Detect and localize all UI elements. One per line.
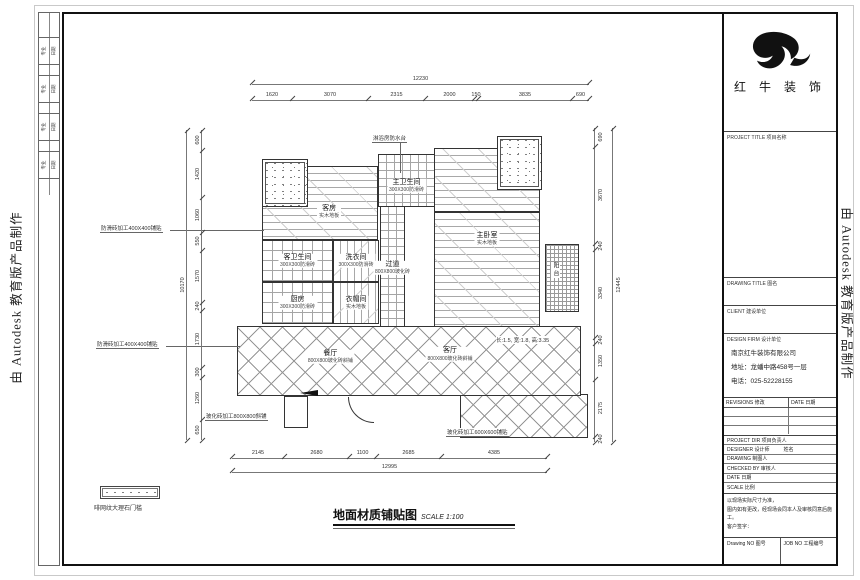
autodesk-watermark-left: 由 Autodesk 教育版产品制作: [6, 203, 25, 393]
room-label-master-bath: 主卫生间 300X300防滑砖: [387, 178, 426, 192]
designer-name: 姓名: [784, 446, 794, 453]
brand-name: 红 牛 装 饰: [724, 78, 836, 95]
room-label-kitchen: 厨房 300X300防滑砖: [278, 296, 317, 310]
planter-top-right: [497, 136, 542, 190]
dim-value: 2145: [252, 450, 264, 456]
entry-porch: [284, 396, 308, 428]
legend-label: 啡网纹大理石门槛: [94, 503, 142, 512]
checked-by-row: CHECKED BY 审核人: [724, 464, 836, 473]
dim-top-segments: 16203070231520001503835690: [252, 100, 589, 101]
signature-cell: 专业 日期: [39, 75, 59, 103]
dim-value: 1060: [195, 208, 201, 220]
sheet-title-text: 地面材质铺贴图: [333, 508, 417, 522]
drawing-by-row: DRAWING 制图人: [724, 455, 836, 464]
dim-value: 1100: [357, 450, 369, 456]
room-master-bed: 主卧室 实木地板: [434, 212, 540, 330]
dim-bottom-total: 12995: [232, 472, 547, 473]
dim-value: 2680: [310, 450, 322, 456]
title-block-revisions-section: REVISIONS 修改 DATE 日期: [724, 398, 836, 436]
sheet-title-underline: [333, 524, 515, 526]
dim-value: 550: [195, 236, 201, 245]
dim-value: 1620: [266, 92, 278, 98]
room-label-living: 客厅 800X800玻化砖斜铺: [426, 347, 475, 361]
room-kitchen: 厨房 300X300防滑砖: [262, 282, 333, 324]
dim-value: 2315: [390, 92, 402, 98]
note-left2-leader: [166, 346, 240, 347]
project-title-label: PROJECT TITLE 项目名称: [724, 132, 836, 141]
signature-cell-text: 日期: [41, 46, 67, 56]
project-dir-row: PROJECT DIR 项目负责人: [724, 436, 836, 445]
frame-left-line: [62, 12, 64, 566]
dim-value: 1570: [195, 270, 201, 282]
date-row: DATE 日期: [724, 474, 836, 483]
client-signature-label: 客户签字：: [727, 523, 833, 532]
project-dir-label: PROJECT DIR 项目负责人: [727, 437, 787, 444]
signature-cell: 专业 日期: [39, 151, 59, 179]
note-tile-600: 玻化砖加工600X600铺贴: [446, 428, 509, 437]
sheet-scale-text: SCALE 1:100: [421, 514, 463, 521]
dim-value: 1260: [195, 392, 201, 404]
note-shower-curb-leader: [400, 143, 401, 173]
planter-top-left: [262, 159, 308, 207]
client-label: CLIENT 建设单位: [724, 306, 836, 315]
title-block-drawing-title-section: DRAWING TITLE 图名: [724, 278, 836, 306]
revisions-header: REVISIONS 修改 DATE 日期: [724, 398, 836, 408]
room-label-guest-bath: 客卫生间 300X300防滑砖: [278, 254, 317, 268]
room-material: 实木地板: [477, 240, 498, 246]
note-tile-400-left2: 防滑砖加工400X400铺贴: [96, 340, 159, 349]
title-block-notes-section: 以现场实际尺寸为准， 图内如有更改，经现场会同本人及审核同意后施工。 客户签字：: [724, 494, 836, 538]
dim-left-segments: 60014201060550157024017303001260650: [201, 130, 202, 440]
revisions-label: REVISIONS 修改: [724, 398, 788, 407]
dim-value: 4385: [488, 450, 500, 456]
revision-row: [724, 426, 836, 434]
room-material: 实木地板: [319, 213, 339, 219]
room-guest-bath: 客卫生间 300X300防滑砖: [262, 240, 333, 282]
drawing-no-label: Drawing NO 图号: [724, 538, 780, 564]
room-material: 300X300防滑砖: [389, 187, 424, 193]
room-label-laundry: 洗衣间 300X300防滑砖: [336, 254, 375, 268]
dim-value: 12995: [382, 464, 397, 470]
scale-row: SCALE 比例: [724, 483, 836, 492]
company-phone: 电话：025-52228155: [724, 375, 836, 385]
signature-cell: 专业 日期: [39, 37, 59, 65]
room-material: 800X800玻化砖斜铺: [428, 355, 473, 361]
room-label-guest-room: 客房 实木地板: [317, 204, 341, 218]
dim-value: 300: [195, 367, 201, 376]
title-block-project-section: PROJECT TITLE 项目名称: [724, 132, 836, 278]
room-corridor: 过道 800X800玻化砖: [380, 206, 405, 330]
signature-strip: 专业 日期 专业 日期 专业 日期 专业 日期: [38, 12, 60, 566]
dim-value: 1730: [195, 332, 201, 344]
sheet-title-underline-thin: [333, 528, 515, 529]
entry-arrow-icon: [300, 390, 318, 396]
dim-value: 2000: [443, 92, 455, 98]
signature-cell-text: 日期: [41, 160, 67, 170]
dim-value: 240: [598, 335, 604, 344]
title-block-people-section: PROJECT DIR 项目负责人 DESIGNER 设计师 姓名 DRAWIN…: [724, 436, 836, 494]
room-material: 800X800玻化砖: [375, 269, 410, 275]
title-block-numbers-section: Drawing NO 图号 JOB NO 工程编号: [724, 538, 836, 564]
dim-value: 3070: [324, 92, 336, 98]
signature-cell-text: 日期: [41, 122, 67, 132]
note-tile-400-left1: 防滑砖加工400X400铺贴: [100, 224, 163, 233]
dim-value: 10170: [180, 277, 186, 292]
dim-value: 240: [598, 434, 604, 443]
room-material: 300X300防滑砖: [280, 304, 315, 310]
dim-value: 600: [195, 135, 201, 144]
dim-value: 240: [195, 301, 201, 310]
revisions-date-label: DATE 日期: [788, 398, 836, 407]
note-bay-window-size: 长:1.5, 宽:1.8, 高:3.35: [496, 336, 549, 344]
revision-row: [724, 417, 836, 426]
title-block-client-section: CLIENT 建设单位: [724, 306, 836, 334]
job-no-label: JOB NO 工程编号: [780, 538, 837, 564]
date-label: DATE 日期: [727, 474, 751, 481]
dim-value: 2685: [402, 450, 414, 456]
designer-label: DESIGNER 设计师: [727, 446, 770, 453]
dim-bottom-segments: 21452680110026854385: [232, 458, 547, 459]
room-material: 300X300防滑砖: [338, 262, 373, 268]
legend-swatch-pattern: [102, 488, 158, 497]
dim-value: 1420: [195, 167, 201, 179]
company-name: 南京红牛装饰有限公司: [724, 347, 836, 357]
room-label-master-bed: 主卧室 实木地板: [475, 231, 500, 245]
room-material: 300X300防滑砖: [280, 262, 315, 268]
note-line: 图内如有更改，经现场会同本人及审核同意后施工。: [727, 506, 833, 523]
note-line: 以现场实际尺寸为准，: [727, 497, 833, 506]
checked-by-label: CHECKED BY 审核人: [727, 465, 776, 472]
signature-cell: 专业 日期: [39, 113, 59, 141]
room-material: 800X800玻化砖斜铺: [308, 358, 353, 364]
room-cloak: 衣帽间 实木地板: [333, 282, 379, 324]
room-material: 实木地板: [346, 304, 367, 310]
dim-value: 1350: [598, 355, 604, 367]
redbull-logo-icon: [744, 28, 816, 76]
room-label-corridor: 过道 800X800玻化砖: [373, 261, 412, 275]
dim-value: 12230: [413, 76, 428, 82]
note-tile-800-diagonal: 玻化砖加工800X800斜铺: [205, 412, 268, 421]
dim-top-total: 12230: [252, 84, 589, 85]
dim-value: 12445: [616, 277, 622, 292]
design-firm-label: DESIGN FIRM 设计单位: [724, 334, 836, 343]
dim-value: 690: [598, 132, 604, 141]
revision-row: [724, 408, 836, 417]
legend-marble-threshold-swatch: [100, 486, 160, 499]
room-balcony: [545, 244, 579, 312]
drawing-by-label: DRAWING 制图人: [727, 455, 767, 462]
dim-value: 650: [195, 425, 201, 434]
dim-value: 3835: [519, 92, 531, 98]
dim-left-total: 10170: [186, 130, 187, 440]
room-label-cloak: 衣帽间 实木地板: [344, 296, 369, 310]
room-master-bath: 主卫生间 300X300防滑砖: [378, 154, 435, 207]
room-label-dining: 餐厅 800X800玻化砖斜铺: [306, 350, 355, 364]
drawing-title-label: DRAWING TITLE 图名: [724, 278, 836, 287]
title-block: 红 牛 装 饰 PROJECT TITLE 项目名称 DRAWING TITLE…: [722, 12, 838, 566]
dim-value: 3340: [598, 287, 604, 299]
note-left1-leader: [170, 230, 264, 231]
dim-right-segments: 6903670240334024013502175240: [594, 128, 595, 442]
scale-label: SCALE 比例: [727, 484, 755, 491]
designer-row: DESIGNER 设计师 姓名: [724, 445, 836, 454]
sheet-title: 地面材质铺贴图SCALE 1:100: [333, 506, 463, 524]
dim-value: 2175: [598, 401, 604, 413]
title-block-logo-section: 红 牛 装 饰: [724, 14, 836, 132]
dim-right-total: 12445: [612, 128, 613, 442]
autodesk-watermark-right: 由 Autodesk 教育版产品制作: [839, 199, 858, 389]
dim-value: 690: [576, 92, 585, 98]
room-label-balcony: 阳台: [551, 262, 560, 278]
dim-value: 3670: [598, 188, 604, 200]
signature-cell-text: 日期: [41, 84, 67, 94]
title-block-design-firm-section: DESIGN FIRM 设计单位 南京红牛装饰有限公司 地址：龙蟠中路458号一…: [724, 334, 836, 398]
dim-value: 240: [598, 241, 604, 250]
company-address: 地址：龙蟠中路458号一层: [724, 361, 836, 371]
note-shower-curb: 淋浴房防水台: [372, 134, 407, 143]
